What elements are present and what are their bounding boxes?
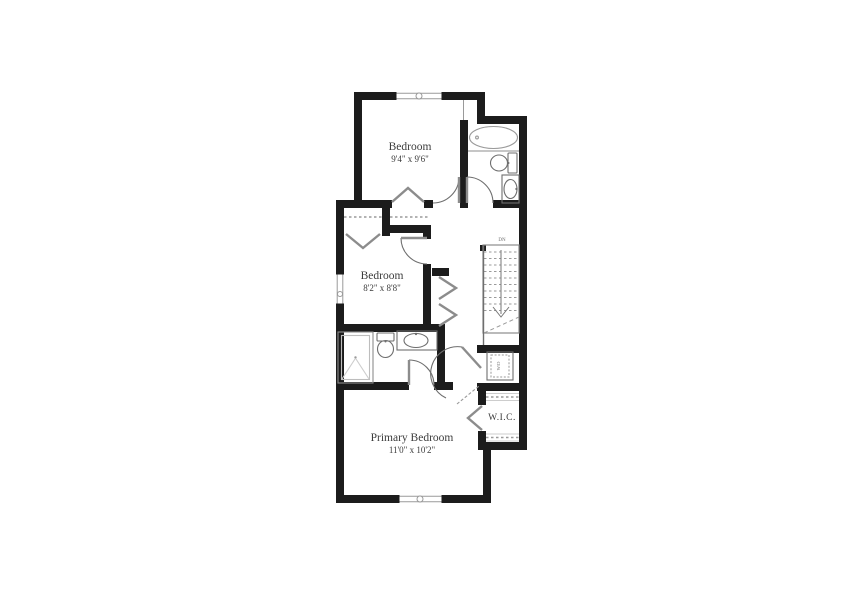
wall: [444, 92, 485, 100]
bifold-door: [468, 406, 482, 430]
bathtub: [468, 127, 519, 152]
bedroom-middle-dimensions: 8'2" x 8'8": [363, 283, 401, 293]
floor-plan-page: DN: [0, 0, 856, 598]
wic-label: W.I.C.: [488, 413, 516, 423]
wall: [444, 495, 491, 503]
bedroom-middle-name: Bedroom: [361, 270, 404, 282]
wall: [434, 382, 453, 390]
doors: [401, 177, 493, 404]
window: [336, 272, 344, 306]
primary-bedroom-name: Primary Bedroom: [371, 432, 454, 444]
wall: [354, 92, 362, 204]
bifold-door: [439, 304, 456, 326]
room-labels: Bedroom 9'4" x 9'6" Bedroom 8'2" x 8'8" …: [361, 141, 516, 455]
stairs-direction-arrow: [493, 250, 509, 317]
primary-bedroom-dimensions: 11'0" x 10'2": [389, 445, 436, 455]
sink-vanity: [397, 331, 437, 350]
door-swing: [467, 177, 493, 203]
bifold-doors: [346, 188, 482, 430]
wall: [423, 264, 431, 332]
stairs-dn-label: DN: [498, 238, 506, 243]
washer-dryer: W/D: [487, 352, 513, 380]
door-swing: [433, 177, 459, 203]
wall: [336, 200, 344, 272]
wall: [336, 382, 344, 503]
threshold-line: [457, 386, 479, 404]
wall: [493, 200, 527, 208]
wall: [382, 225, 431, 233]
wall: [336, 495, 397, 503]
sink-vanity: [502, 175, 519, 203]
stairs: DN: [483, 238, 519, 345]
window: [397, 495, 444, 503]
bedroom-top-name: Bedroom: [389, 141, 432, 153]
toilet: [491, 153, 518, 173]
wall: [477, 383, 523, 391]
washer-dryer-label: W/D: [496, 361, 501, 370]
floor-plan: DN: [0, 0, 856, 598]
wall: [482, 442, 527, 450]
door-swing: [401, 238, 427, 264]
stairs-break-line: [484, 317, 519, 333]
wall: [424, 200, 433, 208]
wall: [519, 116, 527, 450]
wall: [437, 324, 445, 390]
bifold-door: [346, 234, 380, 248]
bedroom-top-dimensions: 9'4" x 9'6": [391, 154, 429, 164]
window: [394, 92, 444, 100]
wall: [478, 391, 486, 405]
wall: [432, 268, 449, 276]
bifold-door: [439, 277, 456, 299]
toilet: [377, 333, 394, 358]
bathroom-2: [338, 331, 437, 383]
bathroom-1: [468, 127, 519, 204]
bifold-door: [392, 188, 424, 202]
